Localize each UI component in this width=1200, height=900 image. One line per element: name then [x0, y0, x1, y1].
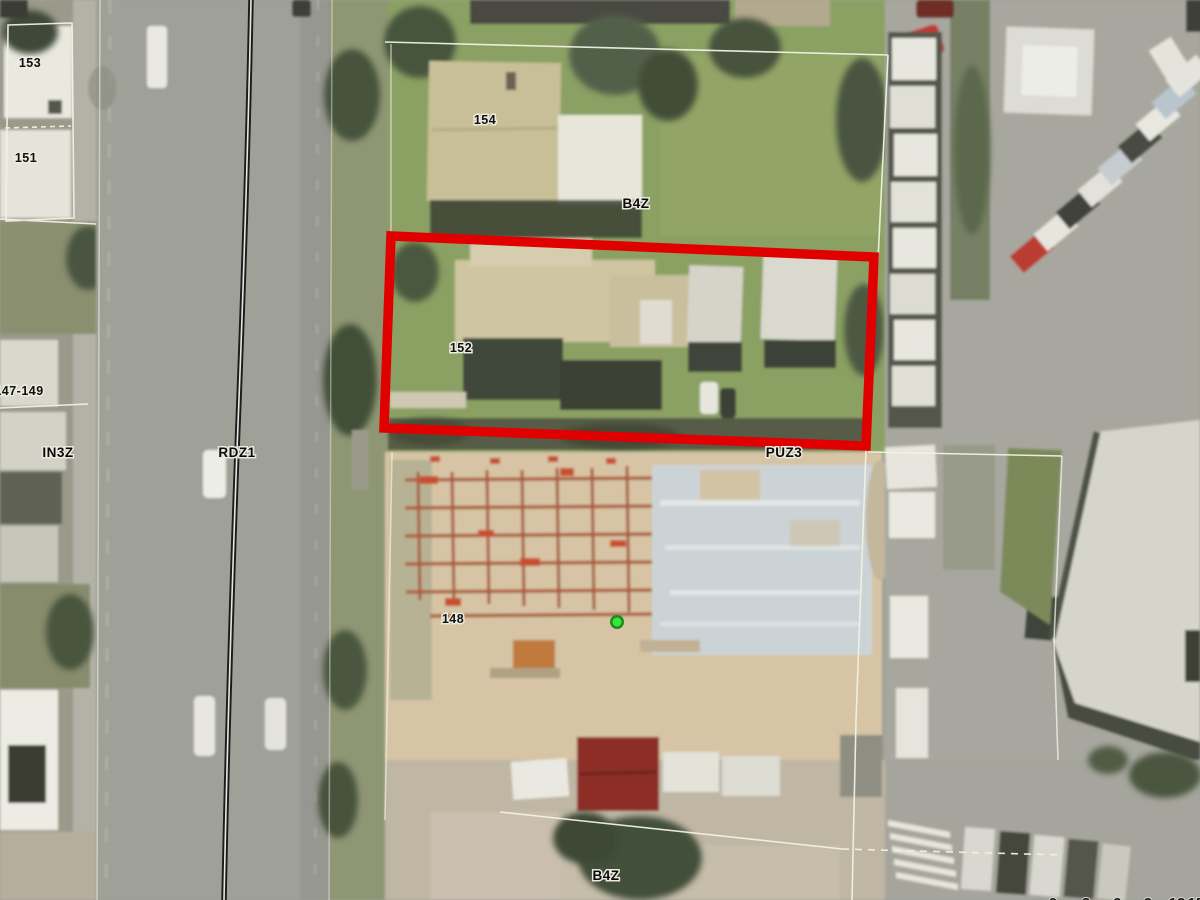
- parcel-label-153: 153: [19, 56, 41, 70]
- aerial-photo-layer: [0, 0, 1200, 900]
- scale-tick-6: 6: [1113, 895, 1121, 900]
- vehicle: [292, 0, 311, 17]
- vehicle: [1186, 0, 1200, 32]
- vehicle: [511, 758, 570, 800]
- concrete-slab: [652, 465, 872, 655]
- vehicle: [265, 698, 286, 750]
- parked-van-column: [890, 38, 937, 406]
- building-roof: [558, 115, 642, 205]
- parcel-label-148: 148: [442, 612, 464, 626]
- parcel-label-152: 152: [450, 341, 472, 355]
- vehicle: [889, 492, 935, 538]
- vehicle: [896, 688, 928, 758]
- machinery: [513, 640, 555, 668]
- marker-dot: [613, 618, 622, 627]
- vehicle: [194, 696, 215, 756]
- parcel-label-154: 154: [474, 113, 496, 127]
- parcel-label-151: 151: [15, 151, 37, 165]
- selected-point-marker: [610, 615, 624, 629]
- building-roof: [687, 265, 744, 345]
- vehicle: [885, 445, 937, 490]
- zone-label-in3z: IN3Z: [42, 445, 73, 460]
- vehicle: [147, 26, 167, 88]
- vehicle: [722, 756, 780, 796]
- building-roof: [760, 251, 837, 342]
- vehicle: [890, 596, 928, 658]
- zone-label-rdz1: RDZ1: [218, 445, 255, 460]
- scale-tick-0: 0: [1049, 895, 1057, 900]
- main-road: [88, 0, 332, 900]
- scale-tick-3: 3: [1082, 895, 1090, 900]
- zone-label-b4z-south: B4Z: [592, 868, 619, 883]
- zone-label-b4z-north: B4Z: [622, 196, 649, 211]
- zone-label-puz3: PUZ3: [766, 445, 803, 460]
- vehicle: [916, 0, 954, 18]
- building-roof: [427, 61, 561, 203]
- right-precinct: [885, 0, 1200, 900]
- scale-tick-15: 15: [1188, 895, 1200, 900]
- parcel-label-147-149: 147-149: [0, 384, 44, 398]
- vehicle: [663, 752, 719, 792]
- scale-tick-12: 12: [1169, 895, 1186, 900]
- aerial-map[interactable]: 153 151 154 152 147-149 148 B4Z IN3Z RDZ…: [0, 0, 1200, 900]
- map-viewport[interactable]: 153 151 154 152 147-149 148 B4Z IN3Z RDZ…: [0, 0, 1200, 900]
- scale-tick-9: 9: [1144, 895, 1152, 900]
